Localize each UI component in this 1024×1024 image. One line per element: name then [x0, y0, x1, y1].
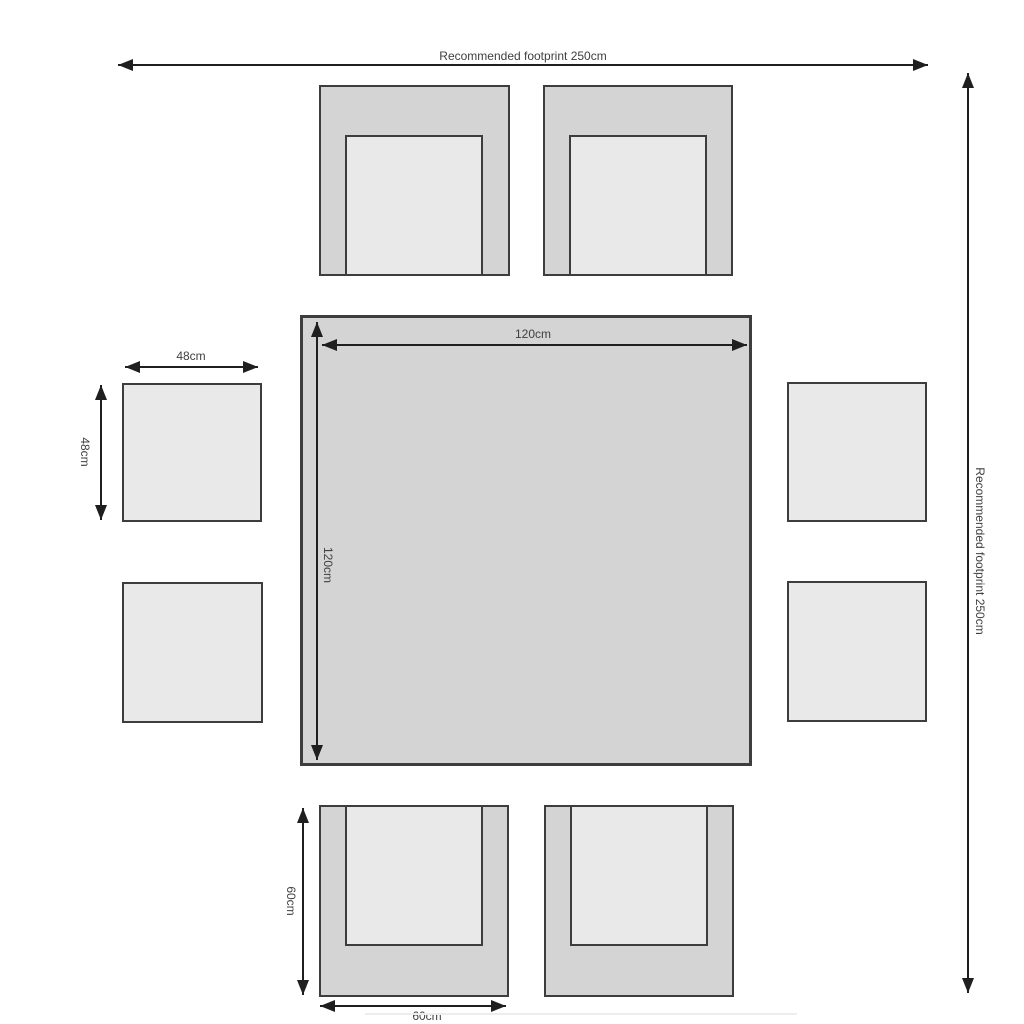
footprint-width-arrow — [118, 64, 928, 66]
table-width-label: 120cm — [515, 328, 551, 340]
stool-width-arrow — [125, 366, 258, 368]
stool-width-label: 48cm — [176, 350, 205, 362]
footprint-width-label: Recommended footprint 250cm — [439, 50, 606, 62]
dining-table — [300, 315, 752, 766]
stool-right-top — [787, 382, 927, 522]
chair-depth-label: 60cm — [285, 886, 297, 915]
table-depth-label: 120cm — [322, 547, 334, 583]
footprint-height-arrow — [967, 73, 969, 993]
stool-depth-label: 48cm — [79, 437, 91, 466]
bottom-faint-line — [365, 1013, 797, 1015]
chair-top-left — [319, 85, 510, 276]
stool-left-top — [122, 383, 262, 522]
chair-bottom-left-seat — [345, 805, 483, 946]
stool-depth-arrow — [100, 385, 102, 520]
chair-top-right-seat — [569, 135, 707, 276]
table-width-arrow — [322, 344, 747, 346]
chair-bottom-right — [544, 805, 734, 997]
chair-top-left-seat — [345, 135, 483, 276]
stool-left-bottom — [122, 582, 263, 723]
table-depth-arrow — [316, 322, 318, 760]
chair-depth-arrow — [302, 808, 304, 995]
chair-top-right — [543, 85, 733, 276]
chair-bottom-left — [319, 805, 509, 997]
chair-width-arrow — [320, 1005, 506, 1007]
footprint-height-label: Recommended footprint 250cm — [974, 467, 986, 634]
chair-bottom-right-seat — [570, 805, 708, 946]
footprint-diagram: Recommended footprint 250cm Recommended … — [0, 0, 1024, 1024]
stool-right-bottom — [787, 581, 927, 722]
chair-width-label: 60cm — [412, 1010, 441, 1022]
